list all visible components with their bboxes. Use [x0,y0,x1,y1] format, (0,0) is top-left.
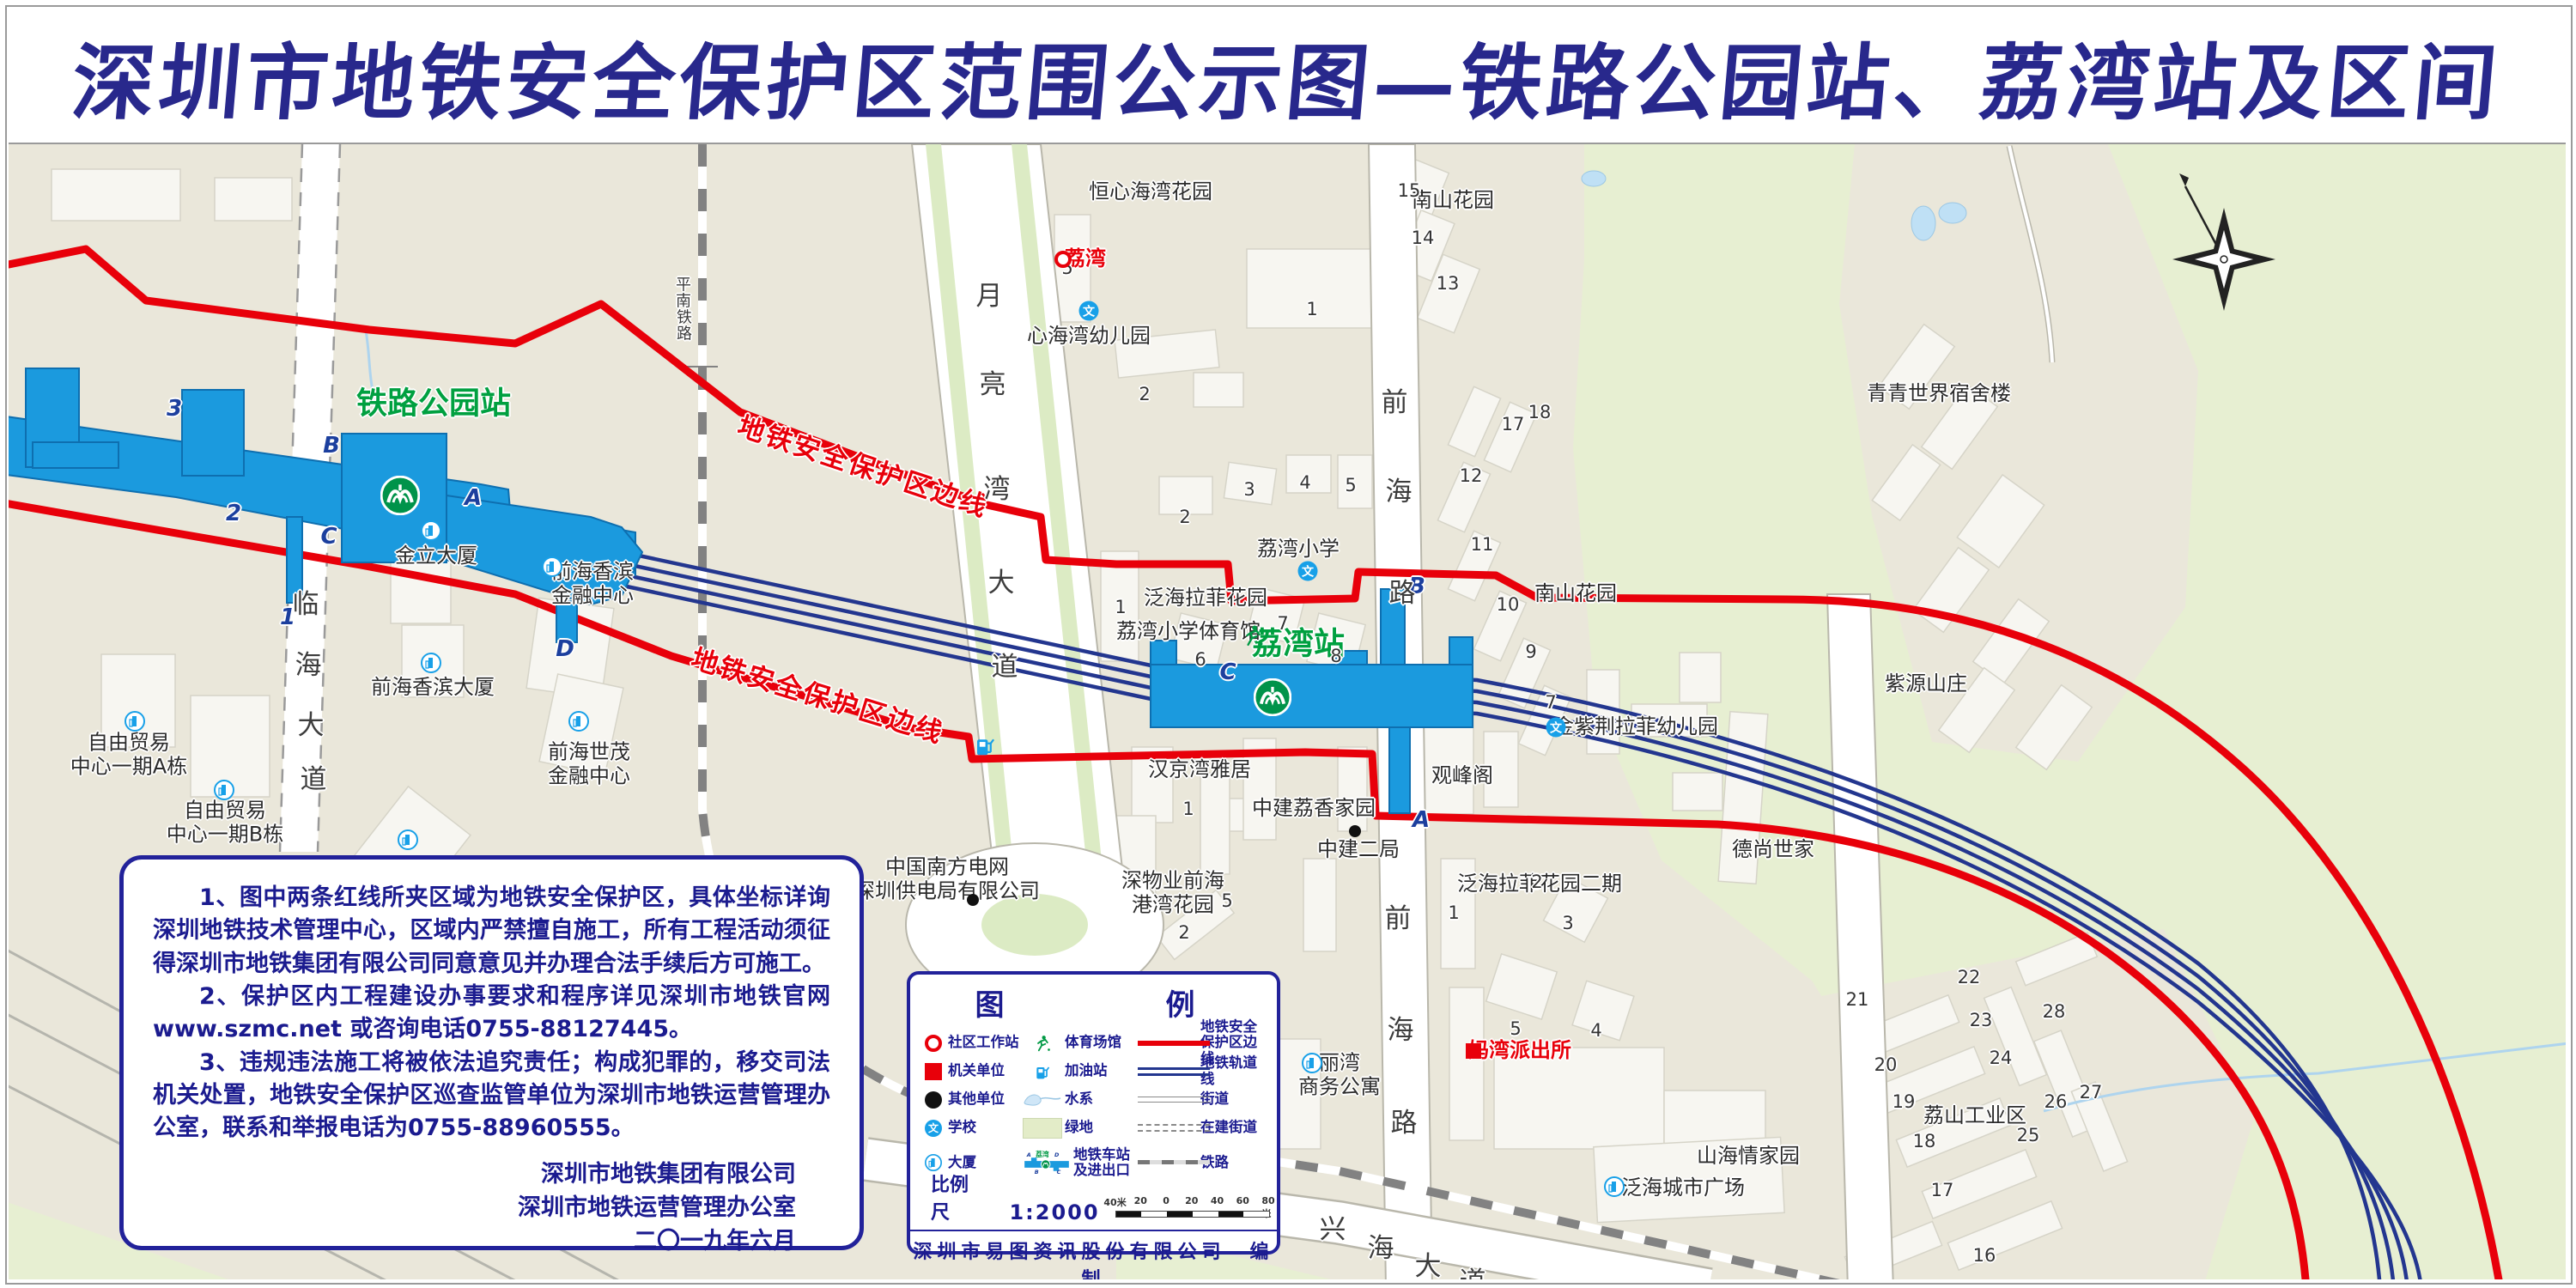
building-number-label: 7 [1277,613,1288,634]
legend-item: 社区工作站 [919,1035,1020,1052]
building-number-label: 21 [1846,989,1869,1010]
map-poi-label: 自由贸易 中心一期B栋 [167,799,283,846]
building-number-label: 20 [1874,1054,1898,1075]
map-poi-label: 心海湾幼儿园 [1027,325,1151,349]
building-icon [214,780,234,800]
bldg-map-icon [568,711,589,735]
legend-item: 街道 [1147,1091,1268,1109]
water-legend-icon [1020,1091,1065,1109]
building-icon [398,829,418,850]
map-poi-label: 山海情家园 [1697,1145,1800,1169]
road-name-char: 海 [1368,1234,1394,1265]
street-under-construction-icon [1138,1119,1210,1138]
map-poi-label: 荔山工业区 [1923,1104,2026,1128]
map-poi-label: 前海香滨 金融中心 [551,560,634,607]
bldg-map-icon [398,829,418,854]
svg-text:D: D [1054,1151,1060,1158]
scale-bar-segments [1115,1211,1270,1218]
station-exit-label: A [1413,808,1430,834]
legend-item-label: 加油站 [1065,1063,1108,1078]
black-dot-legend-icon [919,1091,948,1109]
legend-item-label: 机关单位 [948,1063,1005,1078]
building-number-label: 26 [2044,1091,2068,1112]
scale-bar: 40米20020406080米 [1115,1195,1268,1224]
building-icon [1302,1053,1322,1073]
school-icon: 文 [925,1120,942,1137]
safety-boundary-label: 地铁安全保护区边线 [687,644,947,750]
svg-text:C: C [1057,1169,1061,1176]
building-icon [421,653,441,673]
line-red-legend-icon [1147,1034,1200,1053]
scale-tick-label: 40 [1211,1195,1224,1206]
road-name-char: 道 [301,765,327,796]
building-number-label: 1 [1448,902,1459,923]
road-name-char: 亮 [980,370,1006,401]
building-icon [1604,1176,1625,1197]
scale-tick-label: 20 [1185,1195,1198,1206]
sports-venue-icon [1242,624,1264,647]
building-number-label: 28 [2043,1001,2066,1022]
building-number-label: 19 [1893,1091,1916,1112]
map-poi-label: 青青世界宿舍楼 [1867,382,2011,406]
station-glyph-legend-icon: 荔湾 A B C D [1020,1145,1073,1181]
railway-line-icon [1138,1153,1210,1172]
road-name-char: 临 [293,590,319,621]
line-street-legend-icon [1147,1091,1200,1109]
legend-item: 铁路 [1147,1153,1268,1172]
water-icon [1023,1091,1062,1109]
legend-row: 社区工作站 体育场馆地铁安全 保护区边线 [919,1029,1268,1057]
line-rail-legend-icon [1147,1153,1200,1172]
svg-text:A: A [1026,1151,1031,1158]
building-icon [925,1154,942,1171]
school-map-icon: 文 [1298,562,1318,581]
building-number-label: 22 [1958,967,1981,987]
notice-signature-office: 深圳市地铁运营管理办公室 [153,1191,796,1224]
street-line-icon [1138,1091,1210,1109]
school-icon: 文 [1546,718,1566,738]
scale-value: 1:2000 [1009,1200,1099,1224]
road-name-char: 路 [677,326,692,344]
gas-station-icon [974,734,997,757]
school-legend-icon: 文 [919,1120,948,1137]
legend-item-label: 绿地 [1065,1120,1093,1135]
building-number-label: 14 [1412,228,1435,248]
building-number-label: 18 [1913,1131,1936,1151]
road-name-char: 大 [988,568,1015,599]
bldg-map-icon [1604,1176,1625,1200]
map-poi-label: 中建二局 [1317,838,1400,862]
road-name-char: 海 [1386,477,1413,508]
station-exit-label: 3 [167,397,182,422]
notice-signature-date: 二〇一九年六月 [153,1224,796,1258]
map-poi-label: 前海香滨大厦 [371,676,495,700]
safety-boundary-label: 地铁安全保护区边线 [733,412,992,525]
scale-tick-label: 60 [1236,1195,1249,1206]
bldg-map-icon [421,520,441,544]
building-number-label: 18 [1528,402,1552,422]
legend-item-label: 其他单位 [948,1091,1005,1107]
building-icon [542,556,562,577]
legend-rows: 社区工作站 体育场馆地铁安全 保护区边线机关单位 加油站地铁轨道线其他单位 水系… [919,1029,1268,1183]
legend-item: 机关单位 [919,1063,1020,1080]
notice-signature-company: 深圳市地铁集团有限公司 [153,1157,796,1191]
building-icon [125,711,145,732]
scale-tick-label: 40米 [1103,1195,1126,1209]
building-number-label: 1 [1182,799,1194,819]
map-poi-label: 妈湾派出所 [1468,1039,1571,1063]
other-unit-icon [925,1091,942,1109]
road-name-char: 道 [992,653,1018,683]
scale-label: 比例尺 [931,1170,987,1224]
map-area: 铁路公园站荔湾站地铁安全保护区边线地铁安全保护区边线恒心海湾花园南山花园心海湾幼… [9,144,2566,1279]
runner-map-icon [1242,624,1264,650]
map-poi-label: 泛海拉菲花园 [1144,586,1267,611]
government-unit-icon [925,1063,942,1080]
legend-row: 机关单位 加油站地铁轨道线 [919,1057,1268,1085]
station-exit-label: 2 [226,501,241,527]
runner-legend-icon [1020,1035,1065,1052]
other-unit-icon [1349,825,1361,837]
building-number-label: 5 [1510,1018,1521,1039]
station-name-label: 铁路公园站 [356,386,511,421]
legend-item: 大厦 [919,1154,1020,1171]
line-dashed-legend-icon [1147,1119,1200,1138]
bldg-map-icon [421,653,441,677]
scale-tick-label: 0 [1163,1195,1170,1206]
station-glyph-name: 荔湾 [1035,1150,1049,1158]
station-exit-label: C [320,525,337,550]
other-unit-icon [967,894,979,906]
scale-tick-label: 20 [1134,1195,1147,1206]
map-poi-label: 恒心海湾花园 [1089,180,1212,204]
building-number-label: 7 [1545,692,1556,713]
svg-text:B: B [1035,1169,1039,1176]
station-glyph-icon: 荔湾 A B C D [1020,1145,1073,1181]
page-title: 深圳市地铁安全保护区范围公示图—铁路公园站、荔湾站及区间 [68,16,2506,136]
red-circle-map-icon [1054,251,1072,268]
building-number-label: 9 [1525,641,1536,662]
bldg-legend-icon [919,1154,948,1171]
legend-item: 荔湾 A B C D地铁车站 及进出口 [1020,1145,1147,1181]
building-number-label: 12 [1460,465,1483,486]
station-exit-label: C [1219,660,1236,686]
station-exit-label: B [323,434,340,459]
legend-row: 其他单位 水系街道 [919,1085,1268,1114]
building-number-label: 3 [1243,479,1255,500]
legend-item-label: 地铁车站 及进出口 [1073,1147,1130,1178]
road-name-char: 路 [1389,579,1416,610]
map-poi-label: 南山花园 [1534,582,1617,606]
building-number-label: 4 [1299,472,1310,493]
government-unit-icon [1466,1043,1481,1059]
bldg-map-icon [125,711,145,735]
building-icon [421,520,441,541]
notice-paragraph-3: 3、违规违法施工将被依法追究责任；构成犯罪的，移交司法机关处置，地铁安全保护区巡… [153,1047,830,1145]
community-station-icon [925,1035,942,1052]
road-name-char: 兴 [1320,1215,1346,1246]
building-number-label: 5 [1345,475,1356,495]
map-poi-label: 德尚世家 [1732,838,1814,862]
building-number-label: 4 [1590,1020,1601,1041]
metro-logo-map-icon [380,476,420,519]
legend-item: 其他单位 [919,1091,1020,1109]
bldg-map-icon [1302,1053,1322,1077]
red-square-map-icon [1466,1043,1481,1059]
road-name-char: 前 [1385,904,1412,935]
legend-row: 文学校绿地在建街道 [919,1114,1268,1142]
school-map-icon: 文 [1079,301,1099,321]
bldg-map-icon [214,780,234,804]
notice-box: 1、图中两条红线所夹区域为地铁安全保护区，具体坐标详询深圳地铁技术管理中心，区域… [119,855,864,1250]
poster-frame: 深圳市地铁安全保护区范围公示图—铁路公园站、荔湾站及区间 [5,5,2573,1285]
map-poi-label: 南山花园 [1412,189,1494,213]
building-number-label: 17 [1502,414,1525,434]
building-icon [568,711,589,732]
building-number-label: 5 [1221,890,1232,911]
boundary-line-icon [1138,1034,1210,1053]
legend-item-label: 地铁轨道线 [1200,1055,1268,1086]
legend-item-label: 学校 [948,1120,976,1135]
building-number-label: 16 [1973,1245,1996,1266]
map-poi-label: 中建荔香家园 [1252,797,1376,821]
map-poi-label: 前海世茂 金融中心 [548,740,630,787]
legend-item: 加油站 [1020,1063,1147,1080]
notice-paragraph-1: 1、图中两条红线所夹区域为地铁安全保护区，具体坐标详询深圳地铁技术管理中心，区域… [153,882,830,981]
legend-box: 图 例 社区工作站 体育场馆地铁安全 保护区边线机关单位 加油站地铁轨道线其他单… [907,971,1280,1255]
black-dot-map-icon [1349,825,1361,837]
building-number-label: 2 [1178,922,1189,943]
map-poi-label: 金紫荆拉菲幼儿园 [1553,715,1718,739]
building-number-label: 24 [1990,1048,2013,1068]
legend-credit: 深圳市易图资讯股份有限公司 编 制 [910,1230,1277,1279]
red-circle-legend-icon [919,1035,948,1052]
legend-item-label: 大厦 [948,1155,976,1170]
road-name-char: 大 [298,711,325,742]
line-track-legend-icon [1147,1062,1200,1081]
school-map-icon: 文 [1546,718,1566,738]
pump-map-icon [974,734,997,761]
map-poi-label: 泛海城市广场 [1621,1176,1745,1200]
road-name-char: 前 [1382,388,1408,419]
building-number-label: 11 [1471,534,1494,555]
road-name-char: 海 [295,651,322,682]
map-poi-label: 金立大厦 [395,544,477,568]
legend-item: 绿地 [1020,1118,1147,1139]
building-number-label: 27 [2080,1082,2103,1103]
building-number-label: 1 [1306,299,1317,319]
road-name-char: 月 [976,282,1003,313]
legend-item: 水系 [1020,1091,1147,1109]
building-number-label: 2 [1179,507,1190,527]
legend-item-label: 水系 [1065,1091,1093,1107]
black-dot-map-icon [967,894,979,906]
building-number-label: 1 [1115,597,1126,617]
school-icon: 文 [1079,301,1099,321]
road-name-char: 道 [1460,1267,1486,1279]
station-exit-label: D [556,637,574,663]
school-icon: 文 [1298,562,1318,581]
gas-station-icon [1034,1063,1051,1080]
building-number-label: 8 [1330,646,1341,666]
bldg-map-icon [542,556,562,580]
map-poi-label: 汉京湾雅居 [1148,758,1251,782]
building-number-label: 13 [1437,273,1460,294]
map-poi-label: 自由贸易 中心一期A栋 [70,731,187,778]
sports-venue-icon [1034,1035,1051,1052]
building-number-label: 2 [1139,384,1150,404]
map-poi-label: 荔湾小学 [1257,538,1340,562]
legend-item: 文学校 [919,1120,1020,1137]
map-poi-label: 荔湾小学体育馆 [1116,620,1261,644]
building-number-label: 2 [1531,872,1542,892]
legend-item: 在建街道 [1147,1119,1268,1138]
map-poi-label: 中国南方电网 深圳供电局有限公司 [854,855,1040,902]
road-name-char: 路 [1391,1109,1418,1139]
community-station-icon [1054,251,1072,268]
building-number-label: 6 [1194,649,1206,670]
map-poi-label: 紫源山庄 [1885,672,1967,696]
metro-logo-map-icon [1254,678,1291,720]
road-name-char: 大 [1415,1252,1442,1279]
building-number-label: 15 [1398,180,1421,201]
notice-paragraph-2: 2、保护区内工程建设办事要求和程序详见深圳市地铁官网 www.szmc.net … [153,981,830,1047]
map-poi-label: 观峰阁 [1431,764,1493,788]
legend-title: 图 例 [936,981,1268,1024]
legend-item-label: 体育场馆 [1065,1035,1121,1050]
building-number-label: 17 [1931,1180,1954,1200]
building-number-label: 25 [2017,1125,2040,1145]
track-line-icon [1138,1062,1210,1081]
map-poi-label: 深物业前海 港湾花园 [1121,869,1224,916]
red-square-legend-icon [919,1063,948,1080]
building-number-label: 23 [1970,1010,1993,1030]
pump-legend-icon [1020,1063,1065,1080]
legend-item: 地铁轨道线 [1147,1055,1268,1086]
road-name-char: 海 [1388,1016,1414,1047]
station-exit-label: A [465,486,482,512]
title-bar: 深圳市地铁安全保护区范围公示图—铁路公园站、荔湾站及区间 [9,9,2566,144]
building-number-label: 3 [1562,913,1573,933]
legend-item-label: 社区工作站 [948,1035,1019,1050]
green-rect-legend-icon [1020,1118,1065,1139]
building-number-label: 10 [1497,594,1520,615]
greenland-icon [1023,1118,1062,1139]
shenzhen-metro-logo-icon [380,476,420,515]
shenzhen-metro-logo-icon [1254,678,1291,716]
legend-item: 体育场馆 [1020,1035,1147,1052]
road-name-char: 湾 [984,475,1011,506]
legend-scale-row: 比例尺 1:2000 40米20020406080米 [919,1190,1268,1224]
